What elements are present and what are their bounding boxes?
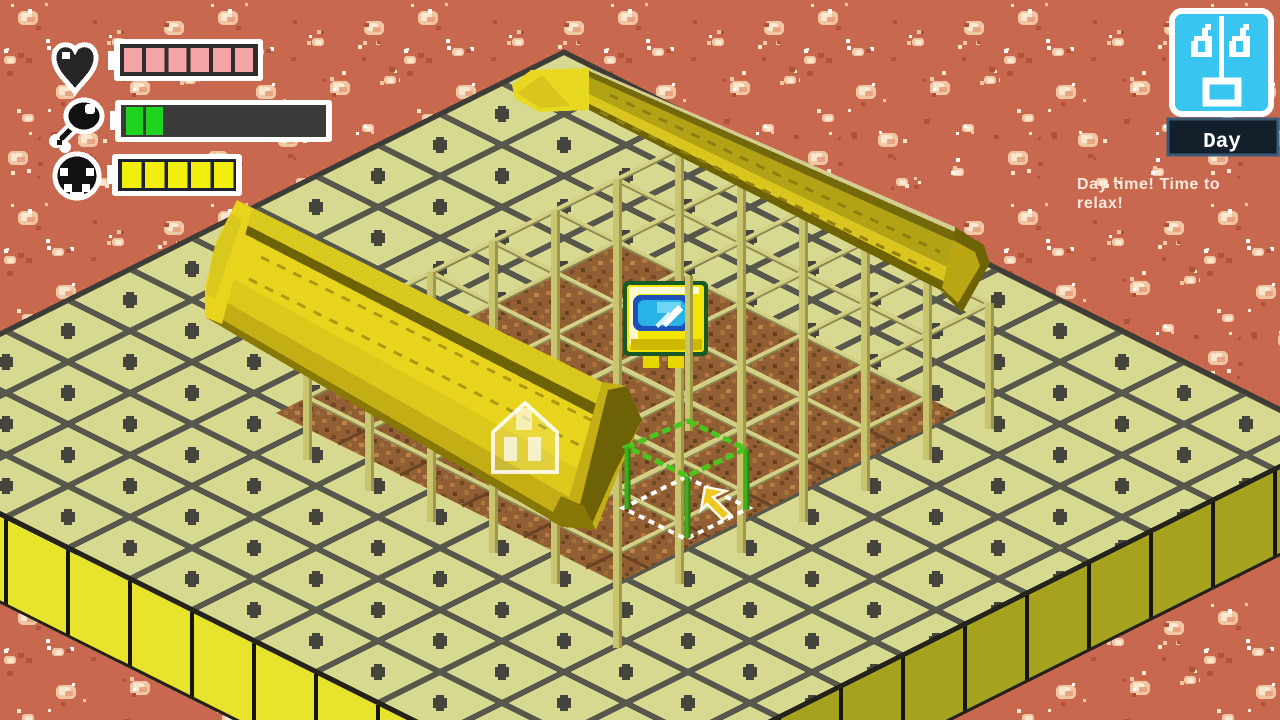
svg-text:Day: Day: [1203, 131, 1241, 154]
svg-text:relax!: relax!: [1077, 195, 1123, 212]
svg-text:Day time! Time to: Day time! Time to: [1077, 176, 1220, 193]
